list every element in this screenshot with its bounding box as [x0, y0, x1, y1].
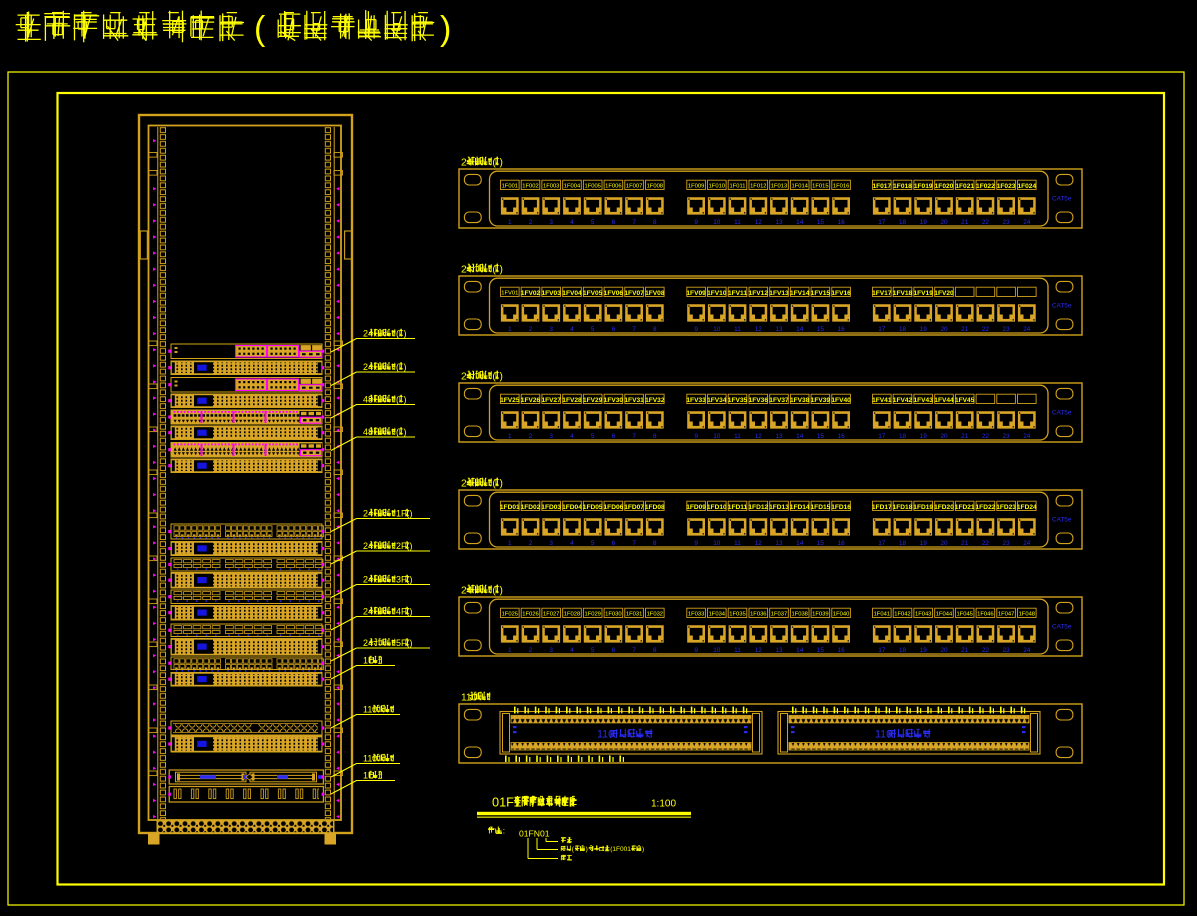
svg-text:1U: 1U	[363, 770, 374, 780]
svg-text:6: 6	[612, 326, 616, 333]
svg-text:1FV07: 1FV07	[624, 290, 644, 297]
svg-text:1FV44: 1FV44	[934, 397, 954, 404]
svg-text:1FD01: 1FD01	[500, 504, 520, 511]
svg-text:4: 4	[570, 433, 574, 440]
svg-text:15: 15	[817, 326, 825, 333]
svg-text:1U: 1U	[363, 655, 374, 665]
svg-text:): )	[500, 585, 503, 596]
svg-text:21: 21	[961, 540, 969, 547]
svg-text:1F013: 1F013	[771, 184, 787, 190]
svg-text:1F003: 1F003	[543, 184, 559, 190]
svg-text:1F004: 1F004	[564, 184, 581, 190]
svg-text:22: 22	[982, 647, 990, 654]
svg-text:1F034: 1F034	[709, 612, 726, 618]
svg-text:2: 2	[529, 433, 533, 440]
svg-text:4: 4	[570, 540, 574, 547]
svg-text:23: 23	[1003, 540, 1011, 547]
svg-text:1FV45: 1FV45	[955, 397, 975, 404]
svg-text:1F002: 1F002	[522, 184, 538, 190]
svg-text:1FV29: 1FV29	[583, 397, 603, 404]
svg-text:10: 10	[713, 219, 721, 226]
svg-text:1FD06: 1FD06	[604, 504, 624, 511]
svg-text:7: 7	[632, 219, 636, 226]
svg-text:24: 24	[461, 264, 473, 275]
svg-text:1FD03: 1FD03	[541, 504, 561, 511]
svg-text:1F027: 1F027	[543, 612, 559, 618]
svg-text:24: 24	[1023, 540, 1031, 547]
svg-text:18: 18	[899, 326, 907, 333]
svg-text:23: 23	[1003, 433, 1011, 440]
svg-text:4: 4	[570, 219, 574, 226]
svg-text:13: 13	[775, 433, 783, 440]
svg-text:1FD16: 1FD16	[831, 504, 851, 511]
svg-text:24: 24	[461, 157, 473, 168]
svg-text:1FV09: 1FV09	[686, 290, 706, 297]
svg-text:1F009: 1F009	[688, 184, 704, 190]
svg-text:(: (	[396, 427, 399, 437]
svg-text:1F021: 1F021	[955, 183, 974, 190]
svg-text:1FV16: 1FV16	[831, 290, 851, 297]
svg-text:1FV42: 1FV42	[893, 397, 913, 404]
svg-text:10: 10	[713, 540, 721, 547]
svg-text:1F029: 1F029	[584, 612, 600, 618]
svg-text:1F010: 1F010	[709, 184, 725, 190]
svg-text:1FV04: 1FV04	[562, 290, 582, 297]
svg-text:3: 3	[549, 219, 553, 226]
svg-text:1F037: 1F037	[771, 612, 787, 618]
svg-text:1FV08: 1FV08	[645, 290, 665, 297]
svg-text:): )	[404, 427, 407, 437]
svg-text:12: 12	[755, 219, 763, 226]
svg-text:3: 3	[549, 540, 553, 547]
svg-text:1F047: 1F047	[998, 612, 1014, 618]
svg-text:3: 3	[549, 433, 553, 440]
svg-text:12: 12	[755, 540, 763, 547]
svg-text:11: 11	[734, 326, 741, 333]
svg-text:17: 17	[878, 326, 886, 333]
svg-text:): )	[404, 328, 407, 338]
svg-text:5: 5	[591, 326, 595, 333]
svg-text:11: 11	[734, 540, 741, 547]
svg-text:1FV18: 1FV18	[893, 290, 913, 297]
svg-text:13: 13	[775, 540, 783, 547]
svg-text:1FD08: 1FD08	[645, 504, 665, 511]
svg-text:24: 24	[1023, 219, 1031, 226]
svg-text:20: 20	[940, 647, 948, 654]
svg-text:14: 14	[796, 433, 804, 440]
svg-text:): )	[410, 541, 413, 551]
svg-text:19: 19	[920, 326, 928, 333]
svg-text:1FV32: 1FV32	[645, 397, 665, 404]
svg-text:1FD24: 1FD24	[1017, 504, 1037, 511]
svg-text:8: 8	[653, 326, 657, 333]
svg-text:7: 7	[632, 433, 636, 440]
svg-text:1F024: 1F024	[1017, 183, 1036, 190]
svg-text:1FV43: 1FV43	[913, 397, 933, 404]
svg-text:1F025: 1F025	[502, 612, 518, 618]
svg-text:1: 1	[508, 219, 512, 226]
svg-text:17: 17	[878, 647, 886, 654]
svg-text:): )	[500, 157, 503, 168]
svg-text:1FV40: 1FV40	[831, 397, 851, 404]
svg-text:1FD07: 1FD07	[624, 504, 644, 511]
svg-text:17: 17	[878, 540, 886, 547]
svg-text:24: 24	[1023, 326, 1031, 333]
svg-text:12: 12	[755, 326, 763, 333]
svg-text:2: 2	[529, 219, 533, 226]
svg-text:20: 20	[940, 433, 948, 440]
svg-text:3: 3	[549, 326, 553, 333]
svg-text:6: 6	[612, 647, 616, 654]
svg-text:18: 18	[899, 433, 907, 440]
svg-text:1F046: 1F046	[977, 612, 993, 618]
svg-text:1: 1	[508, 433, 512, 440]
svg-text:CAT5e: CAT5e	[1052, 410, 1072, 417]
svg-text:CAT5e: CAT5e	[1052, 624, 1072, 631]
svg-text:1: 1	[508, 540, 512, 547]
svg-text:20: 20	[940, 219, 948, 226]
svg-text:1F007: 1F007	[626, 184, 642, 190]
svg-text:1FV03: 1FV03	[541, 290, 561, 297]
svg-text:7: 7	[632, 326, 636, 333]
svg-text:3: 3	[549, 647, 553, 654]
svg-text:1F023: 1F023	[997, 183, 1016, 190]
svg-text:1F028: 1F028	[564, 612, 580, 618]
svg-text:5: 5	[591, 433, 595, 440]
svg-text:CAT5e: CAT5e	[1052, 517, 1072, 524]
svg-text:17: 17	[878, 219, 886, 226]
svg-text:1FV27: 1FV27	[541, 397, 561, 404]
svg-text:1FD11: 1FD11	[728, 504, 748, 511]
svg-text:1FV05: 1FV05	[583, 290, 603, 297]
svg-text:9: 9	[694, 433, 698, 440]
svg-text:2: 2	[529, 326, 533, 333]
svg-text:1FV31: 1FV31	[624, 397, 644, 404]
svg-text:21: 21	[961, 433, 969, 440]
svg-text:1FV25: 1FV25	[500, 397, 520, 404]
svg-text:19: 19	[920, 433, 928, 440]
svg-text:1FD05: 1FD05	[583, 504, 603, 511]
svg-text:21: 21	[961, 219, 969, 226]
svg-text:1FD20: 1FD20	[934, 504, 954, 511]
svg-text:1F042: 1F042	[894, 612, 910, 618]
svg-text:22: 22	[982, 219, 990, 226]
svg-text:(: (	[254, 10, 266, 48]
svg-text:15: 15	[817, 540, 825, 547]
svg-text:12: 12	[755, 647, 763, 654]
svg-text:18: 18	[899, 219, 907, 226]
svg-text:4: 4	[570, 326, 574, 333]
svg-text:6: 6	[612, 433, 616, 440]
svg-text:1F030: 1F030	[605, 612, 621, 618]
svg-text:1FD19: 1FD19	[913, 504, 933, 511]
svg-text:): )	[410, 574, 413, 584]
svg-text:23: 23	[1003, 219, 1011, 226]
svg-text:14: 14	[796, 326, 804, 333]
svg-text:7: 7	[632, 647, 636, 654]
svg-text:1FV14: 1FV14	[790, 290, 810, 297]
svg-text:1FV17: 1FV17	[872, 290, 892, 297]
svg-text:4: 4	[570, 647, 574, 654]
svg-text:1FV12: 1FV12	[749, 290, 769, 297]
svg-text:1F038: 1F038	[791, 612, 807, 618]
svg-text:CAT5e: CAT5e	[1052, 303, 1072, 310]
svg-text:): )	[586, 846, 588, 853]
svg-text:1FV19: 1FV19	[913, 290, 933, 297]
svg-text:1F019: 1F019	[914, 183, 933, 190]
svg-text:16: 16	[838, 326, 846, 333]
svg-text:22: 22	[982, 326, 990, 333]
svg-text:): )	[410, 508, 413, 518]
svg-text:9: 9	[694, 219, 698, 226]
svg-text:(1F001-: (1F001-	[610, 846, 633, 853]
svg-text:1F036: 1F036	[750, 612, 766, 618]
svg-text:1FV33: 1FV33	[686, 397, 706, 404]
svg-text:1F001: 1F001	[502, 184, 518, 190]
svg-text:1FV11: 1FV11	[728, 290, 747, 297]
svg-text:1F048: 1F048	[1019, 612, 1035, 618]
svg-text:1F020: 1F020	[935, 183, 954, 190]
svg-text:1F045: 1F045	[956, 612, 972, 618]
svg-text:9: 9	[694, 326, 698, 333]
svg-text:1F017: 1F017	[872, 183, 891, 190]
svg-text:22: 22	[982, 433, 990, 440]
svg-text:1F043: 1F043	[915, 612, 931, 618]
svg-text:7: 7	[632, 540, 636, 547]
svg-text:10: 10	[713, 647, 721, 654]
svg-text:1F032: 1F032	[647, 612, 663, 618]
svg-text:11: 11	[734, 647, 741, 654]
svg-text:1FV35: 1FV35	[728, 397, 748, 404]
svg-text:8: 8	[653, 647, 657, 654]
svg-text:11: 11	[734, 433, 741, 440]
svg-text:1FD04: 1FD04	[562, 504, 582, 511]
svg-text:1FV28: 1FV28	[562, 397, 582, 404]
svg-text:1F016: 1F016	[833, 184, 849, 190]
svg-text:CAT5e: CAT5e	[1052, 196, 1072, 203]
svg-text:1F033: 1F033	[688, 612, 704, 618]
svg-text:2: 2	[529, 647, 533, 654]
svg-text:9: 9	[694, 647, 698, 654]
svg-text:19: 19	[920, 647, 928, 654]
svg-text:1FV39: 1FV39	[811, 397, 831, 404]
svg-text:01F: 01F	[492, 795, 514, 810]
svg-text:5: 5	[591, 219, 595, 226]
svg-text:20: 20	[940, 326, 948, 333]
svg-text:8: 8	[653, 540, 657, 547]
svg-text:5: 5	[591, 540, 595, 547]
svg-text:1F014: 1F014	[791, 184, 808, 190]
svg-text:1FD12: 1FD12	[748, 504, 768, 511]
svg-text:1FD13: 1FD13	[769, 504, 789, 511]
svg-text:1FV37: 1FV37	[769, 397, 789, 404]
svg-text:1FD17: 1FD17	[872, 504, 892, 511]
svg-text:1FD09: 1FD09	[686, 504, 706, 511]
svg-text:23: 23	[1003, 647, 1011, 654]
svg-text:1F006: 1F006	[605, 184, 621, 190]
svg-text:24: 24	[461, 585, 473, 596]
svg-text:1: 1	[508, 326, 512, 333]
svg-text::: :	[503, 827, 505, 836]
svg-text:1FD22: 1FD22	[976, 504, 996, 511]
svg-text:6: 6	[612, 219, 616, 226]
svg-text:1F005: 1F005	[584, 184, 600, 190]
svg-text:10: 10	[713, 326, 721, 333]
svg-text:5: 5	[591, 647, 595, 654]
svg-text:16: 16	[838, 540, 846, 547]
svg-text:1:100: 1:100	[651, 799, 676, 810]
svg-text:01FN01: 01FN01	[519, 829, 550, 839]
svg-text:2: 2	[529, 540, 533, 547]
svg-text:1FD02: 1FD02	[521, 504, 541, 511]
svg-text:24: 24	[1023, 433, 1031, 440]
svg-text:16: 16	[838, 433, 846, 440]
svg-text:1FV06: 1FV06	[604, 290, 624, 297]
svg-text:18: 18	[899, 647, 907, 654]
svg-text:1FV36: 1FV36	[749, 397, 769, 404]
svg-text:16: 16	[838, 219, 846, 226]
svg-text:1F040: 1F040	[833, 612, 849, 618]
svg-text:15: 15	[817, 647, 825, 654]
svg-text:8: 8	[653, 433, 657, 440]
svg-text:1FD18: 1FD18	[893, 504, 913, 511]
svg-text:1F018: 1F018	[893, 183, 912, 190]
svg-text:1FV30: 1FV30	[604, 397, 624, 404]
svg-text:1FV26: 1FV26	[521, 397, 541, 404]
svg-text:6: 6	[612, 540, 616, 547]
svg-text:): )	[410, 606, 413, 616]
svg-text:22: 22	[982, 540, 990, 547]
svg-text:14: 14	[796, 540, 804, 547]
svg-text:21: 21	[961, 647, 969, 654]
svg-text:24: 24	[461, 478, 473, 489]
svg-text:16: 16	[838, 647, 846, 654]
svg-text:1F012: 1F012	[750, 184, 766, 190]
svg-text:19: 19	[920, 540, 928, 547]
svg-text:10: 10	[713, 433, 721, 440]
svg-text:1F031: 1F031	[626, 612, 642, 618]
svg-text:1FV02: 1FV02	[521, 290, 541, 297]
svg-text:17: 17	[878, 433, 886, 440]
svg-text:1F015: 1F015	[812, 184, 828, 190]
svg-text:1F011: 1F011	[729, 184, 745, 190]
svg-text:1FV15: 1FV15	[811, 290, 831, 297]
svg-text:19: 19	[920, 219, 928, 226]
svg-text:1F026: 1F026	[522, 612, 538, 618]
svg-text:23: 23	[1003, 326, 1011, 333]
svg-text:14: 14	[796, 219, 804, 226]
svg-text:1FD21: 1FD21	[955, 504, 975, 511]
svg-text:1F039: 1F039	[812, 612, 828, 618]
svg-text:24: 24	[1023, 647, 1031, 654]
svg-text:14: 14	[796, 647, 804, 654]
svg-text:1FD10: 1FD10	[707, 504, 727, 511]
svg-text:15: 15	[817, 219, 825, 226]
svg-text:1: 1	[508, 647, 512, 654]
svg-text:(: (	[396, 362, 399, 372]
svg-text:(: (	[396, 394, 399, 404]
svg-text:1FD15: 1FD15	[811, 504, 831, 511]
svg-text:1FV01: 1FV01	[501, 291, 518, 297]
svg-text:): )	[500, 478, 503, 489]
svg-text:): )	[410, 638, 413, 648]
svg-text:9: 9	[694, 540, 698, 547]
svg-text:1F008: 1F008	[647, 184, 663, 190]
svg-text:(: (	[396, 328, 399, 338]
svg-text:15: 15	[817, 433, 825, 440]
svg-text:1FD23: 1FD23	[996, 504, 1016, 511]
svg-text:1FV38: 1FV38	[790, 397, 810, 404]
svg-text:1F044: 1F044	[936, 612, 953, 618]
svg-text:1F035: 1F035	[729, 612, 745, 618]
svg-text:13: 13	[775, 647, 783, 654]
svg-text:13: 13	[775, 219, 783, 226]
svg-text:18: 18	[899, 540, 907, 547]
svg-text:1FV41: 1FV41	[872, 397, 892, 404]
svg-text:): )	[440, 10, 451, 48]
svg-text:1F041: 1F041	[874, 612, 890, 618]
svg-text:1F022: 1F022	[976, 183, 995, 190]
svg-text:): )	[500, 264, 503, 275]
svg-text:1FV20: 1FV20	[934, 290, 954, 297]
svg-text:13: 13	[775, 326, 783, 333]
svg-text:20: 20	[940, 540, 948, 547]
svg-text:): )	[404, 394, 407, 404]
svg-text:11: 11	[734, 219, 741, 226]
svg-text:12: 12	[755, 433, 763, 440]
svg-text:): )	[500, 371, 503, 382]
svg-text:8: 8	[653, 219, 657, 226]
svg-text:24: 24	[461, 371, 473, 382]
svg-text:): )	[404, 362, 407, 372]
svg-text:1FV34: 1FV34	[707, 397, 727, 404]
svg-text:): )	[642, 846, 644, 853]
svg-text:1FD14: 1FD14	[790, 504, 810, 511]
svg-text:21: 21	[961, 326, 969, 333]
svg-text:1FV13: 1FV13	[769, 290, 789, 297]
svg-text:1FV10: 1FV10	[707, 290, 727, 297]
